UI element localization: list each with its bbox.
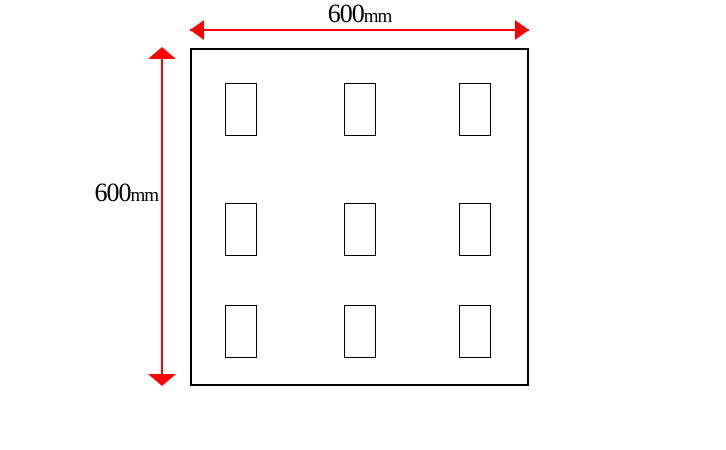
arrowhead-down-icon <box>148 374 176 386</box>
left-dimension-line <box>161 48 163 385</box>
panel-outline <box>190 48 529 386</box>
cutout-rect <box>225 305 257 358</box>
height-value: 600 <box>94 178 130 207</box>
drawing-canvas: 600mm 600mm <box>0 0 726 450</box>
width-unit: mm <box>364 6 392 27</box>
top-dimension-label: 600mm <box>190 1 529 31</box>
cutout-rect <box>459 305 491 358</box>
left-dimension-label: 600mm <box>62 180 158 210</box>
cutout-rect <box>344 305 376 358</box>
cutout-rect <box>344 203 376 256</box>
cutout-rect <box>459 83 491 136</box>
width-value: 600 <box>328 0 364 28</box>
height-unit: mm <box>130 185 158 206</box>
cutout-rect <box>225 83 257 136</box>
cutout-rect <box>344 83 376 136</box>
cutout-rect <box>459 203 491 256</box>
cutout-rect <box>225 203 257 256</box>
arrowhead-up-icon <box>148 47 176 59</box>
